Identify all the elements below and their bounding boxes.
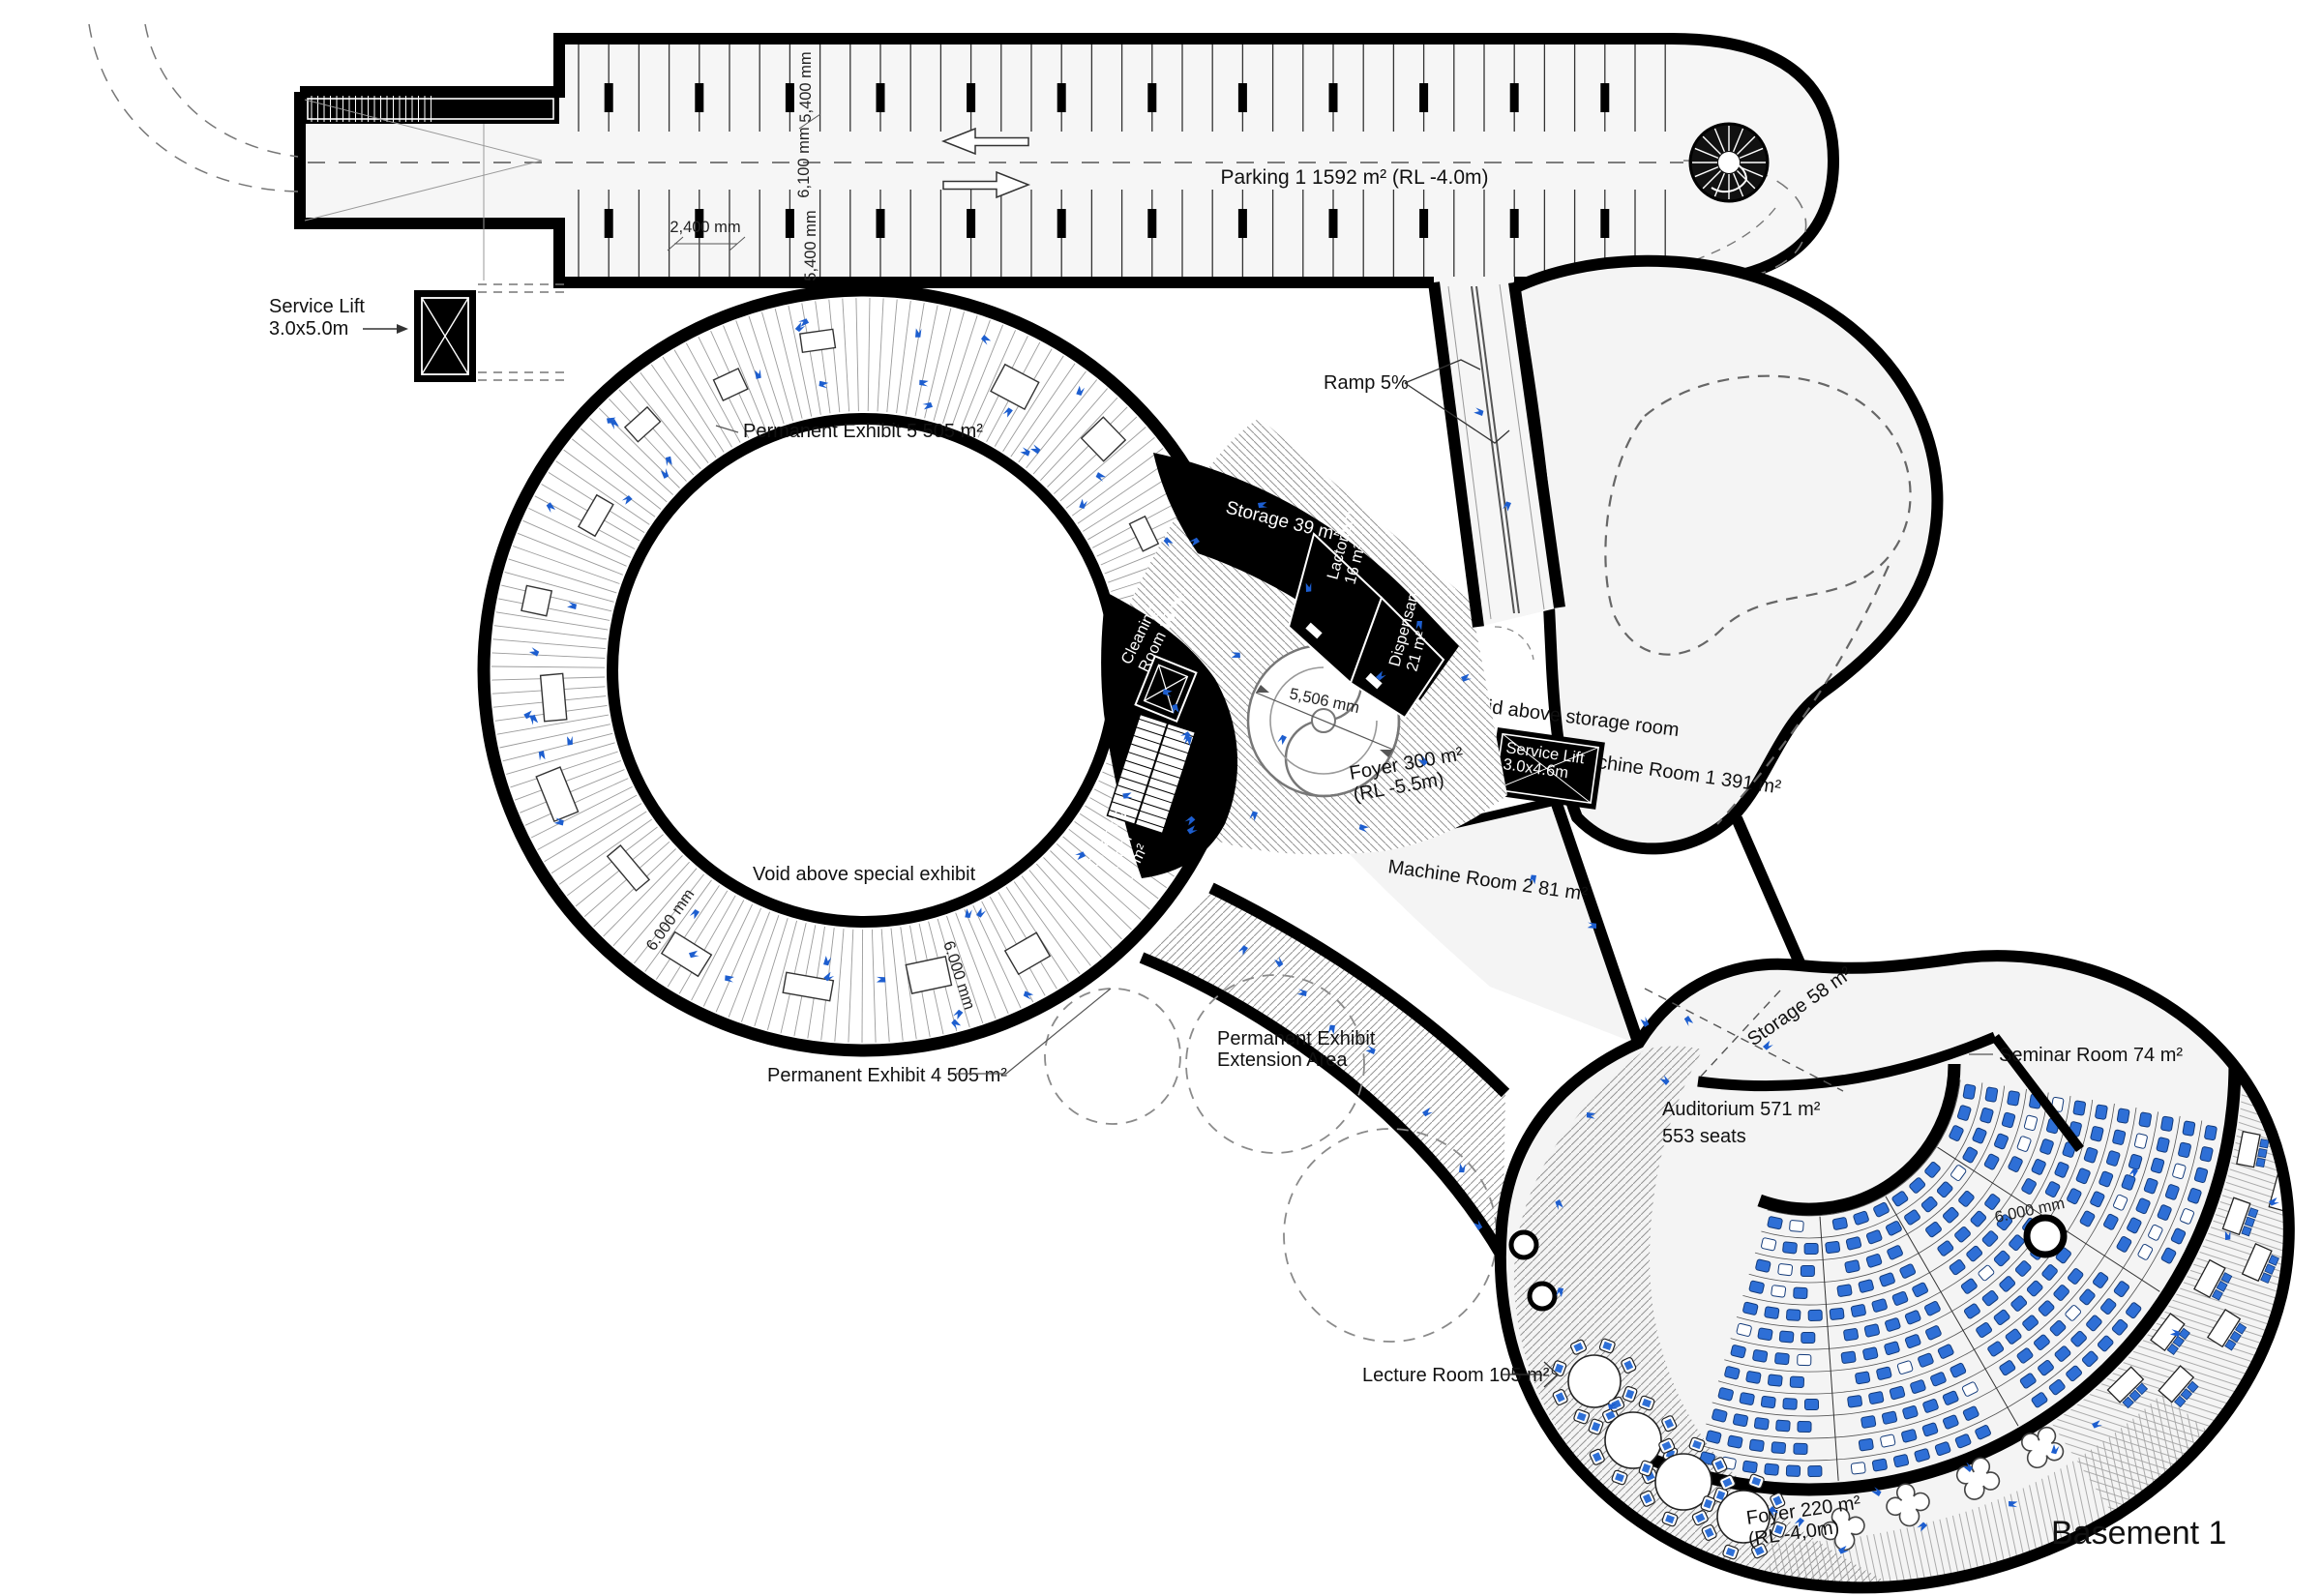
void-special-exhibit-label: Void above special exhibit [753,864,976,885]
basement-1-plan: 5,400 mm 6,100 mm 5,400 mm 2,400 mm Park… [0,0,2322,1596]
floor-plan-page: 5,400 mm 6,100 mm 5,400 mm 2,400 mm Park… [0,0,2322,1596]
ramp-label: Ramp 5% [1324,372,1409,394]
parking-floor [300,39,1833,282]
sheet-title: Basement 1 [2051,1515,2226,1552]
parking-label: Parking 1 1592 m² (RL -4.0m) [1221,166,1489,189]
dim-parking-bay-bottom: 5,400 mm [802,210,819,281]
service-lift-1-label-1: Service Lift [269,296,365,317]
dim-parking-aisle: 6,100 mm [795,127,813,197]
neck-wall [1737,818,1801,967]
parking-garage: 5,400 mm 6,100 mm 5,400 mm 2,400 mm Park… [300,39,1833,287]
permanent-exhibit-4-label: Permanent Exhibit 4 505 m² [767,1065,1007,1086]
auditorium-label-2: 553 seats [1662,1126,1746,1147]
seminar-label: Seminar Room 74 m² [1999,1045,2183,1066]
site-dashed-curves [89,24,298,192]
auditorium-label-1: Auditorium 571 m² [1662,1099,1821,1120]
extension-area-label-1: Permanent Exhibit [1217,1028,1376,1049]
leader [716,426,738,432]
dim-parking-stall: 2,400 mm [670,219,740,236]
permanent-exhibit-5-label: Permanent Exhibit 5 505 m² [743,421,983,442]
extension-area-label-2: Extension Area [1217,1049,1348,1071]
service-lift-1-label-2: 3.0x5.0m [269,318,348,340]
dim-parking-bay-top: 5,400 mm [797,51,815,122]
service-lift-1: Service Lift 3.0x5.0m [269,284,569,382]
lecture-label: Lecture Room 105 m² [1362,1365,1550,1386]
leader-arrow [397,324,408,334]
ring-inner-wall [612,419,1116,922]
